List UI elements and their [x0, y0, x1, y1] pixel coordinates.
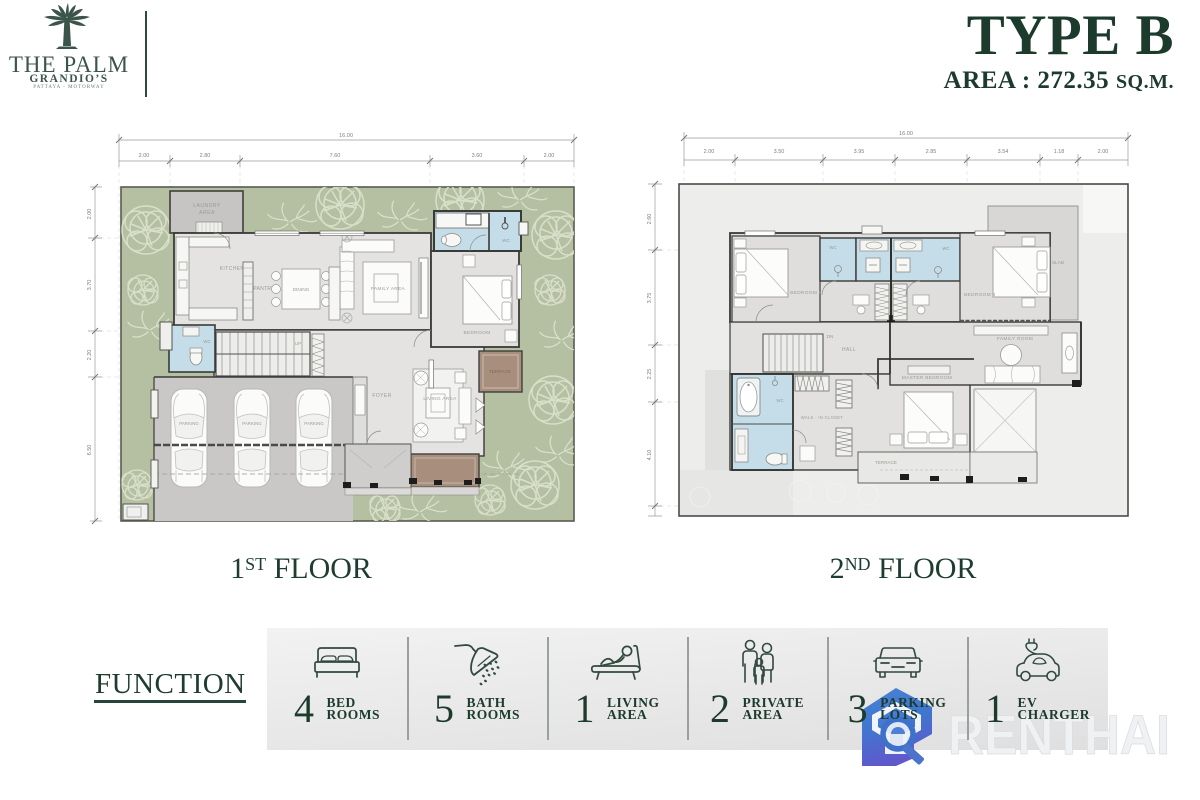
- svg-text:UP: UP: [295, 341, 301, 346]
- svg-text:DINING: DINING: [293, 287, 310, 293]
- svg-text:TERRACE: TERRACE: [875, 460, 897, 465]
- svg-text:1.18: 1.18: [1054, 149, 1065, 155]
- svg-text:2.00: 2.00: [87, 209, 93, 220]
- svg-text:2.00: 2.00: [139, 153, 150, 159]
- svg-text:SLAB: SLAB: [1052, 260, 1064, 266]
- svg-text:2.00: 2.00: [1098, 149, 1109, 155]
- svg-text:HALL: HALL: [842, 347, 856, 353]
- svg-text:DN: DN: [827, 334, 834, 339]
- svg-text:FAMILY ROOM: FAMILY ROOM: [997, 336, 1033, 342]
- svg-text:2.80: 2.80: [200, 153, 211, 159]
- svg-text:PARKING: PARKING: [179, 421, 199, 426]
- svg-text:3.75: 3.75: [647, 293, 653, 304]
- svg-text:BEDROOM 3: BEDROOM 3: [964, 292, 996, 298]
- svg-text:WC: WC: [203, 339, 210, 344]
- svg-text:TERRACE: TERRACE: [489, 369, 511, 374]
- svg-text:BEDROOM: BEDROOM: [464, 330, 491, 336]
- svg-text:2.00: 2.00: [544, 153, 555, 159]
- svg-text:WC: WC: [942, 246, 949, 251]
- svg-text:KITCHEN: KITCHEN: [220, 266, 245, 272]
- svg-text:3.70: 3.70: [87, 280, 93, 291]
- svg-text:WC: WC: [829, 245, 836, 250]
- svg-text:16.00: 16.00: [339, 133, 353, 139]
- svg-text:MASTER BEDROOM: MASTER BEDROOM: [902, 375, 952, 381]
- svg-text:LIVING AREA: LIVING AREA: [423, 396, 457, 402]
- svg-text:3.50: 3.50: [774, 149, 785, 155]
- svg-text:2.85: 2.85: [926, 149, 937, 155]
- svg-text:AREA: AREA: [199, 210, 215, 216]
- svg-text:PARKING: PARKING: [304, 421, 324, 426]
- svg-text:2.20: 2.20: [87, 350, 93, 361]
- svg-text:3.60: 3.60: [472, 153, 483, 159]
- svg-text:BEDROOM 2: BEDROOM 2: [790, 290, 822, 296]
- svg-text:WC: WC: [502, 238, 510, 243]
- svg-text:3.95: 3.95: [854, 149, 865, 155]
- svg-text:FAMILY AREA: FAMILY AREA: [371, 286, 406, 292]
- svg-text:WALK - IN CLOSET: WALK - IN CLOSET: [801, 415, 843, 420]
- svg-text:2.00: 2.00: [704, 149, 715, 155]
- svg-text:6.50: 6.50: [87, 445, 93, 456]
- svg-text:FOYER: FOYER: [372, 393, 391, 399]
- svg-text:WC: WC: [776, 398, 783, 403]
- svg-text:2.25: 2.25: [647, 369, 653, 380]
- svg-text:LAUNDRY: LAUNDRY: [193, 203, 221, 209]
- svg-text:7.60: 7.60: [330, 153, 341, 159]
- svg-text:4.10: 4.10: [647, 450, 653, 461]
- svg-text:2.60: 2.60: [647, 214, 653, 225]
- svg-text:3.54: 3.54: [998, 149, 1009, 155]
- svg-text:16.00: 16.00: [899, 131, 913, 137]
- svg-text:PARKING: PARKING: [242, 421, 262, 426]
